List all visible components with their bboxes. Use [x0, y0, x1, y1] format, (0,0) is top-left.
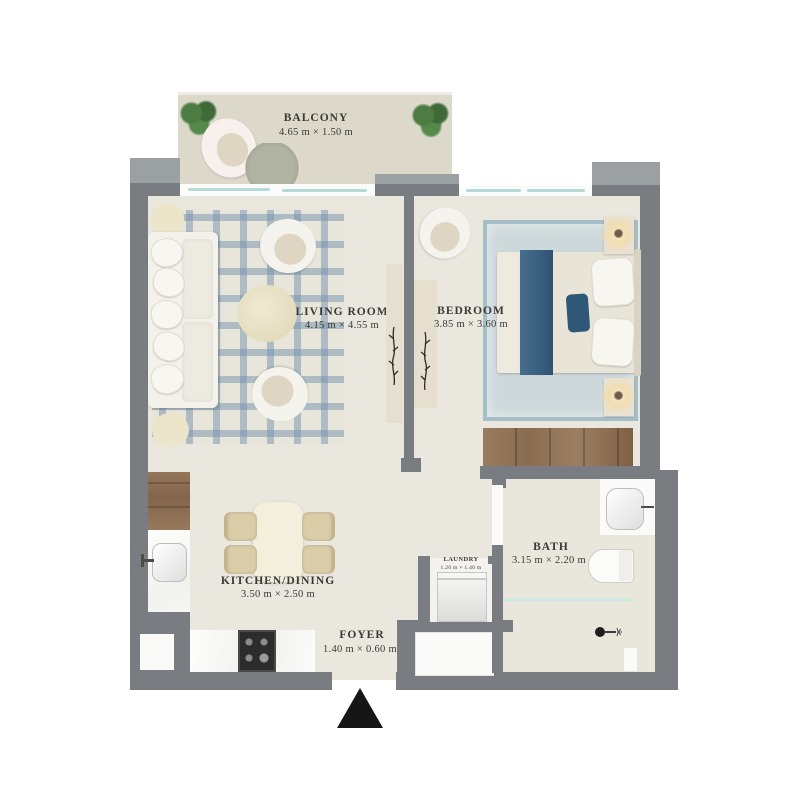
wall-foyer-right: [397, 632, 415, 677]
faucet-icon: [641, 506, 654, 508]
decor-branch-icon: [388, 325, 400, 387]
room-label-living: LIVING ROOM: [295, 306, 388, 318]
wall-notch: [624, 648, 637, 671]
room-dims-bath: 3.15 m × 2.20 m: [512, 555, 586, 566]
bath-door-opening: [492, 485, 503, 545]
lamp-icon: [614, 229, 623, 238]
wall-segment: [401, 458, 421, 472]
glass-pane: [282, 189, 367, 192]
wall-bedroom-bottom: [480, 466, 660, 479]
washing-machine: [437, 572, 487, 622]
lamp-icon: [614, 391, 623, 400]
wall-laundry-left: [418, 556, 430, 624]
glass-pane: [188, 188, 270, 191]
bed-pillow: [590, 257, 635, 308]
dining-chair: [224, 545, 257, 574]
wardrobe: [483, 428, 633, 466]
plant-icon: [412, 102, 450, 140]
glass-pane: [466, 189, 521, 192]
room-label-kitchen: KITCHEN/DINING: [221, 575, 335, 587]
room-label-balcony: BALCONY: [284, 112, 349, 124]
toilet: [588, 549, 634, 583]
room-label-laundry: LAUNDRY: [443, 556, 478, 563]
decor-branch-icon: [419, 330, 431, 392]
room-label-foyer: FOYER: [339, 629, 384, 641]
glass-pane: [527, 189, 585, 192]
shower-head-icon: [594, 624, 622, 640]
bed-runner: [520, 250, 553, 375]
room-dims-kitchen: 3.50 m × 2.50 m: [241, 589, 315, 600]
sofa: [148, 232, 218, 408]
room-dims-foyer: 1.40 m × 0.60 m: [323, 644, 397, 655]
bed-pillow: [590, 317, 635, 368]
dining-chair: [302, 545, 335, 574]
bedroom-window: [459, 186, 592, 196]
room-dims-laundry: 1.20 m × 1.40 m: [441, 565, 482, 571]
bathroom-sink: [606, 488, 644, 530]
wall-bath-left: [492, 545, 503, 673]
faucet-icon: [141, 554, 144, 567]
dining-chair: [224, 512, 257, 541]
wall-segment: [375, 184, 459, 196]
room-label-bedroom: BEDROOM: [437, 305, 505, 317]
room-label-bath: BATH: [533, 541, 569, 553]
cooktop: [238, 630, 276, 672]
floor-pouf: [151, 203, 184, 234]
foyer-door-gap-floor: [332, 672, 396, 680]
room-dims-bedroom: 3.85 m × 3.60 m: [434, 319, 508, 330]
balcony-sliding-door: [180, 184, 375, 196]
floor-plan: BALCONY 4.65 m × 1.50 m LIVING ROOM 4.15…: [0, 0, 800, 800]
wall-bottom-exterior: [130, 672, 332, 690]
ottoman: [237, 285, 297, 342]
wall-right-exterior: [655, 470, 678, 680]
wall-right-exterior: [640, 196, 660, 480]
built-in-appliance: [140, 634, 174, 670]
nightstand: [604, 216, 634, 254]
floor-pouf: [152, 413, 189, 447]
dining-table: [253, 502, 303, 582]
nightstand: [604, 378, 634, 416]
shower-glass-screen: [503, 598, 633, 601]
bed-accent-pillow: [566, 293, 591, 332]
entry-closet: [415, 632, 494, 676]
room-dims-living: 4.15 m × 4.55 m: [305, 320, 379, 331]
kitchen-sink: [152, 543, 187, 582]
wall-left-exterior: [130, 183, 148, 680]
wall-segment: [130, 158, 180, 185]
wall-segment: [592, 162, 660, 187]
wall-bath-left: [492, 472, 503, 485]
kitchen-tall-cabinet: [148, 472, 190, 530]
wall-living-bedroom: [404, 196, 414, 458]
entrance-arrow-icon: [337, 688, 383, 728]
wall-segment: [592, 185, 660, 196]
dining-chair: [302, 512, 335, 541]
bed: [497, 252, 639, 373]
room-dims-balcony: 4.65 m × 1.50 m: [279, 127, 353, 138]
